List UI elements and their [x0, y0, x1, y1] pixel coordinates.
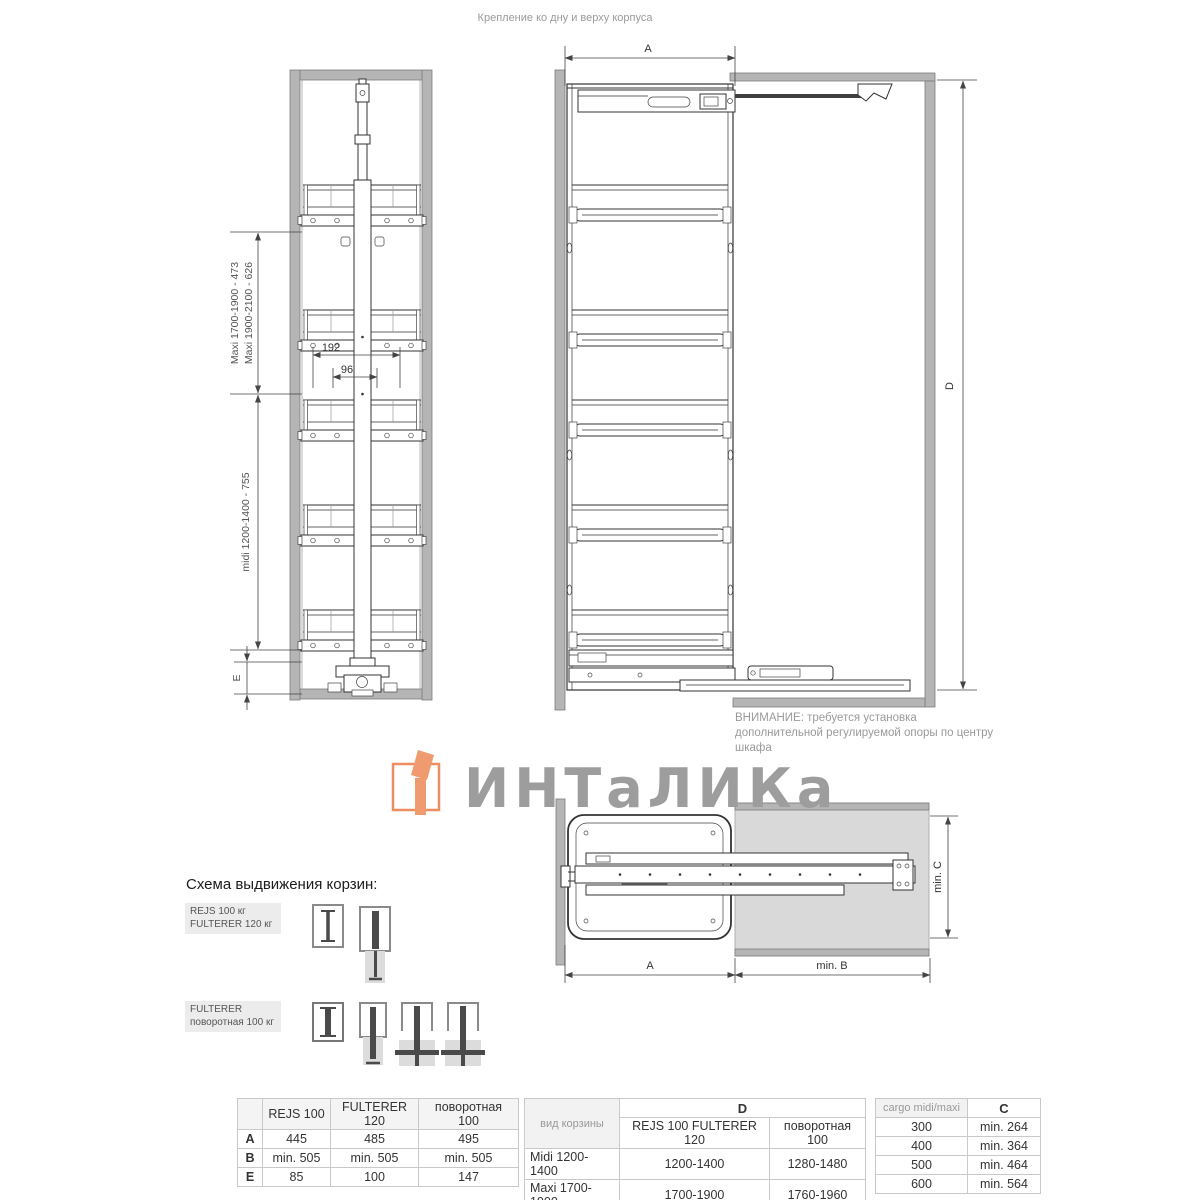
table-cell: min. 505 [263, 1149, 331, 1168]
table-header-cell: FULTERER 120 [331, 1099, 419, 1130]
table-cell: 1760-1960 [770, 1180, 866, 1200]
table-row: 500 min. 464 [876, 1156, 1041, 1175]
logo: ИНТаЛИКа [390, 748, 838, 818]
top-view-drawing: min. C A min. B [556, 799, 958, 983]
schema-heading: Схема выдвижения корзин: [186, 876, 377, 893]
schema-diagrams-row1 [305, 901, 415, 991]
table-cell: 500 [876, 1156, 968, 1175]
dim-label-midi: midi 1200-1400 - 755 [240, 472, 252, 571]
diagram-rotated [395, 1003, 439, 1066]
technical-drawing: 192 96 Maxi 1700-1900 - 473 Maxi 1900-21… [0, 0, 1200, 1200]
dim-label-maxi-1: Maxi 1700-1900 - 473 [229, 262, 241, 364]
table-header-cell: cargo midi/maxi [876, 1099, 968, 1118]
side-view-drawing: A D [555, 43, 977, 710]
table-cell: B [238, 1149, 263, 1168]
diagram-extended [360, 907, 390, 983]
table-cell: min. 564 [968, 1175, 1041, 1194]
diagram-closed [313, 1003, 343, 1041]
table-cell: Midi 1200-1400 [525, 1149, 620, 1180]
table-row: E 85 100 147 [238, 1168, 519, 1187]
table-cell: A [238, 1130, 263, 1149]
dim-label-a-side: A [644, 43, 652, 55]
table-cell: Maxi 1700-1900 [525, 1180, 620, 1200]
dim-label-a-top: A [646, 960, 654, 972]
schema-label-line: REJS 100 кг [190, 906, 276, 919]
dim-label-maxi-2: Maxi 1900-2100 - 626 [243, 262, 255, 364]
dim-label-min-c: min. C [932, 861, 944, 893]
table-cell: min. 505 [419, 1149, 519, 1168]
schema-diagrams-row2 [305, 1000, 505, 1078]
table-header-cell: поворотная 100 [419, 1099, 519, 1130]
diagram-closed [313, 905, 343, 947]
page: Крепление ко дну и верху корпуса [0, 0, 1200, 1200]
table-cell: 600 [876, 1175, 968, 1194]
schema-label-rejs-fulterer: REJS 100 кг FULTERER 120 кг [185, 903, 281, 934]
table-row: 400 min. 364 [876, 1137, 1041, 1156]
schema-label-fulterer-rotary: FULTERER поворотная 100 кг [185, 1001, 281, 1032]
table-header-cell: REJS 100 [263, 1099, 331, 1130]
table-cell: 445 [263, 1130, 331, 1149]
table-cell: 100 [331, 1168, 419, 1187]
table-cell: 1280-1480 [770, 1149, 866, 1180]
table-row: 600 min. 564 [876, 1175, 1041, 1194]
front-view-drawing: 192 96 Maxi 1700-1900 - 473 Maxi 1900-21… [229, 70, 432, 710]
table-cell: 1200-1400 [620, 1149, 770, 1180]
schema-label-line: FULTERER [190, 1004, 276, 1017]
dim-label-min-b: min. B [816, 960, 847, 972]
table-header-cell [238, 1099, 263, 1130]
table-cell: 300 [876, 1118, 968, 1137]
table-cell: min. 464 [968, 1156, 1041, 1175]
table-row: A 445 485 495 [238, 1130, 519, 1149]
dim-label-192: 192 [322, 342, 340, 354]
table-cell: min. 364 [968, 1137, 1041, 1156]
table-row: Maxi 1700-1900 1700-1900 1760-1960 [525, 1180, 866, 1200]
table-header-cell: поворотная 100 [770, 1118, 866, 1149]
table-header-cell: вид корзины [525, 1099, 620, 1149]
table-cell: min. 505 [331, 1149, 419, 1168]
table-row: 300 min. 264 [876, 1118, 1041, 1137]
logo-icon [390, 748, 450, 818]
table-basket-heights: вид корзины D REJS 100 FULTERER 120 пово… [524, 1098, 866, 1200]
table-cell: 400 [876, 1137, 968, 1156]
dim-label-96: 96 [341, 364, 353, 376]
dim-label-d: D [944, 382, 956, 390]
table-cell: 495 [419, 1130, 519, 1149]
table-cargo-depth: cargo midi/maxi C 300 min. 264 400 min. … [875, 1098, 1041, 1194]
table-cell: 85 [263, 1168, 331, 1187]
dim-label-e: E [231, 674, 243, 681]
table-header-cell: C [968, 1099, 1041, 1118]
table-cell: 1700-1900 [620, 1180, 770, 1200]
diagram-extended [360, 1003, 386, 1065]
table-cell: 485 [331, 1130, 419, 1149]
logo-text: ИНТаЛИКа [464, 762, 838, 816]
diagram-rotated [441, 1003, 485, 1066]
table-row: Midi 1200-1400 1200-1400 1280-1480 [525, 1149, 866, 1180]
table-header-cell: REJS 100 FULTERER 120 [620, 1118, 770, 1149]
schema-label-line: поворотная 100 кг [190, 1017, 276, 1030]
table-header-cell: D [620, 1099, 866, 1118]
table-cell: min. 264 [968, 1118, 1041, 1137]
table-cell: E [238, 1168, 263, 1187]
table-cell: 147 [419, 1168, 519, 1187]
schema-label-line: FULTERER 120 кг [190, 919, 276, 932]
table-abe-dimensions: REJS 100 FULTERER 120 поворотная 100 A 4… [237, 1098, 519, 1187]
table-row: B min. 505 min. 505 min. 505 [238, 1149, 519, 1168]
